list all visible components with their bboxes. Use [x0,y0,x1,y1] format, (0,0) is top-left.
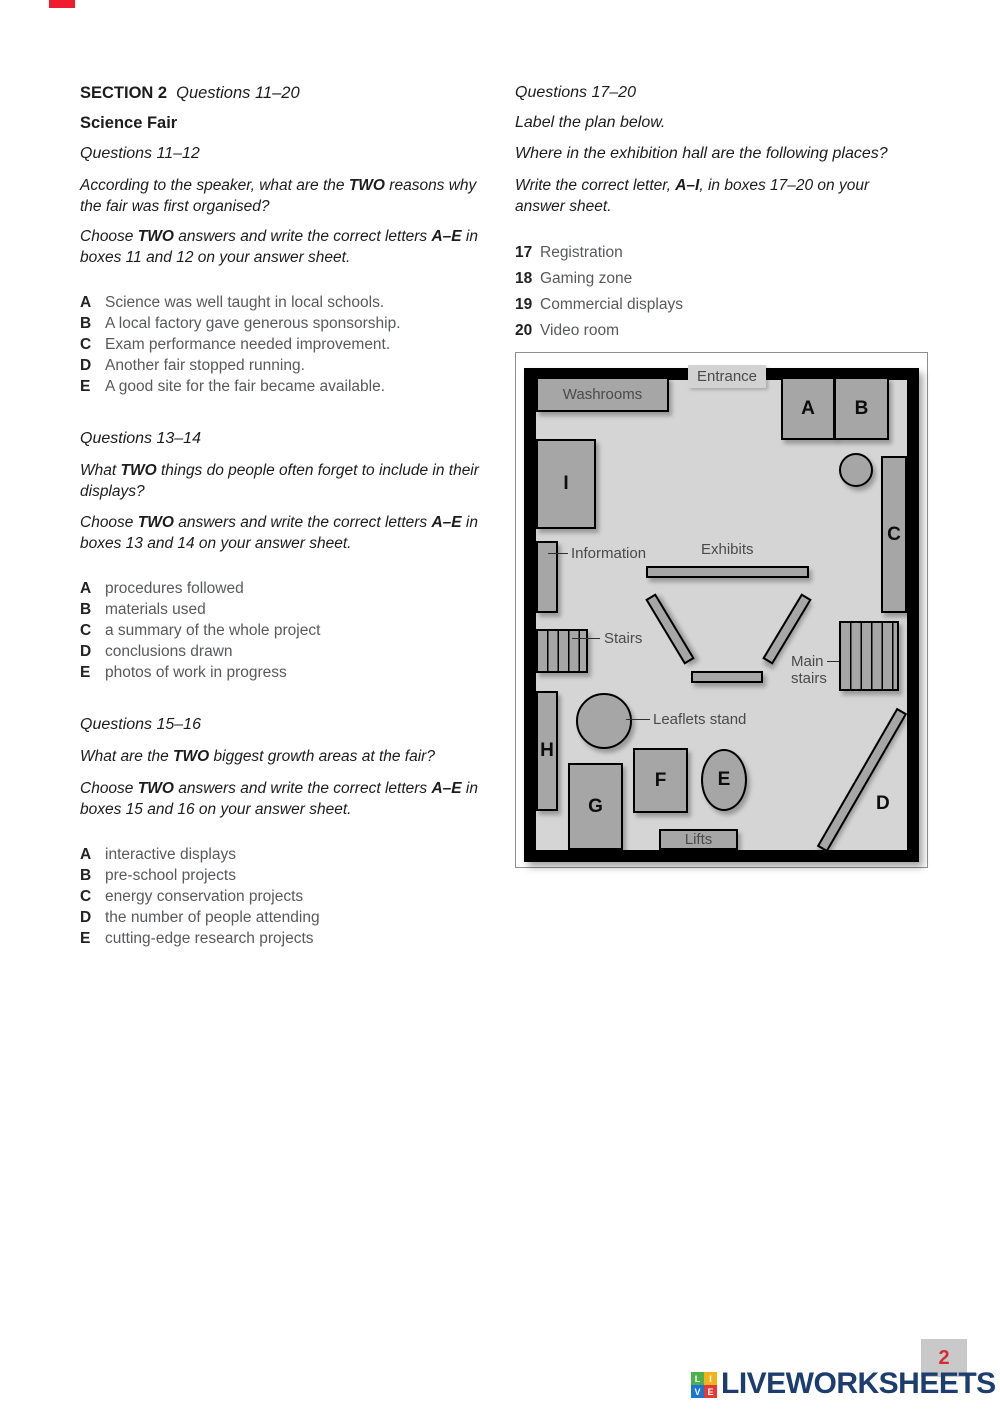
option-row: Bmaterials used [80,599,320,620]
question-label: Registration [540,240,623,266]
option-text: Another fair stopped running. [105,355,305,376]
plan-pillar-circle [839,453,873,487]
q11-12-options: AScience was well taught in local school… [80,292,401,397]
option-row: Ecutting-edge research projects [80,928,320,949]
plan-label-exhibits: Exhibits [701,541,754,558]
connector-line [548,553,568,554]
question-number: 20 [515,318,540,344]
option-text: conclusions drawn [105,641,233,662]
option-row: Aprocedures followed [80,578,320,599]
option-row: Dthe number of people attending [80,907,320,928]
question-bold: TWO [173,748,209,765]
plan-label-entrance: Entrance [688,365,766,388]
logo-square-l: L [691,1372,704,1385]
question-text: What [80,462,120,479]
instruction-bold: A–E [431,780,461,797]
q13-14-heading: Questions 13–14 [80,430,201,448]
option-letter: C [80,620,105,641]
plan-room-g: G [568,763,623,850]
question-item: 18Gaming zone [515,266,683,292]
option-text: materials used [105,599,206,620]
question-item: 19Commercial displays [515,292,683,318]
option-row: AScience was well taught in local school… [80,292,401,313]
q17-20-items: 17Registration 18Gaming zone 19Commercia… [515,240,683,344]
plan-label-main-stairs: Main stairs [791,653,827,687]
question-number: 17 [515,240,540,266]
instruction-text: Choose [80,780,138,797]
room-letter: A [801,398,815,420]
question-text: According to the speaker, what are the [80,177,349,194]
question-bold: TWO [349,177,385,194]
plan-room-e: E [701,749,747,811]
test-title: Science Fair [80,114,177,133]
option-text: A good site for the fair became availabl… [105,376,385,397]
room-letter: G [588,796,603,818]
q15-16-instruction: Choose TWO answers and write the correct… [80,778,492,820]
option-row: Ca summary of the whole project [80,620,320,641]
option-text: energy conservation projects [105,886,303,907]
q11-12-instruction: Choose TWO answers and write the correct… [80,226,492,268]
plan-label-stairs: Stairs [604,630,642,647]
question-label: Video room [540,318,619,344]
option-letter: D [80,641,105,662]
question-item: 20Video room [515,318,683,344]
instruction-text: answers and write the correct letters [174,514,432,531]
option-row: CExam performance needed improvement. [80,334,401,355]
plan-stairs-box [536,629,588,673]
option-row: Ephotos of work in progress [80,662,320,683]
q17-20-instruction: Write the correct letter, A–I, in boxes … [515,175,900,217]
q15-16-heading: Questions 15–16 [80,716,201,734]
plan-room-d-letter: D [876,793,890,815]
room-letter: B [855,398,869,420]
q13-14-options: Aprocedures followed Bmaterials used Ca … [80,578,320,683]
section-label: SECTION 2 [80,84,167,102]
room-letter: F [655,770,667,792]
question-label: Gaming zone [540,266,632,292]
option-text: the number of people attending [105,907,320,928]
q15-16-question: What are the TWO biggest growth areas at… [80,746,492,767]
q15-16-options: Ainteractive displays Bpre-school projec… [80,844,320,949]
instruction-bold: TWO [138,514,174,531]
q13-14-question: What TWO things do people often forget t… [80,460,492,502]
room-letter: I [563,473,568,495]
instruction-text: Choose [80,514,138,531]
connector-line [827,661,839,662]
main-stairs-line2: stairs [791,670,827,687]
plan-label-information: Information [571,545,646,562]
option-row: Dconclusions drawn [80,641,320,662]
logo-square-i: I [704,1372,717,1385]
option-letter: D [80,355,105,376]
connector-line [572,638,600,639]
plan-centre-stand [691,671,763,683]
option-row: DAnother fair stopped running. [80,355,401,376]
plan-main-stairs-box [839,621,899,691]
main-stairs-line1: Main [791,653,827,670]
q13-14-instruction: Choose TWO answers and write the correct… [80,512,492,554]
instruction-bold: TWO [138,228,174,245]
liveworksheets-grid-icon: L I V E [691,1372,717,1398]
logo-square-e: E [704,1385,717,1398]
option-text: Science was well taught in local schools… [105,292,384,313]
option-letter: A [80,844,105,865]
corner-red-mark [49,0,75,8]
option-letter: A [80,292,105,313]
option-letter: B [80,599,105,620]
option-text: photos of work in progress [105,662,287,683]
label-plan-line: Label the plan below. [515,114,665,132]
q11-12-heading: Questions 11–12 [80,145,200,163]
option-row: Bpre-school projects [80,865,320,886]
plan-room-i: I [536,439,596,529]
section-range: Questions 11–20 [176,84,300,102]
plan-exhibits-bar [646,566,809,578]
plan-washrooms-box: Washrooms [536,377,669,412]
question-text: biggest growth areas at the fair? [209,748,435,765]
q17-20-heading: Questions 17–20 [515,84,636,102]
option-row: EA good site for the fair became availab… [80,376,401,397]
option-text: pre-school projects [105,865,236,886]
option-letter: C [80,334,105,355]
option-letter: E [80,928,105,949]
option-letter: A [80,578,105,599]
option-letter: C [80,886,105,907]
option-row: Ainteractive displays [80,844,320,865]
room-letter: H [540,740,554,762]
plan-room-c: C [881,456,907,613]
plan-leaflets-circle [576,693,632,749]
room-letter: C [887,524,901,546]
logo-square-v: V [691,1385,704,1398]
option-text: interactive displays [105,844,236,865]
instruction-text: Write the correct letter, [515,177,675,194]
connector-line [626,719,650,720]
plan-label-leaflets: Leaflets stand [653,711,746,728]
plan-lifts-box: Lifts [659,829,738,850]
option-row: BA local factory gave generous sponsorsh… [80,313,401,334]
question-text: What are the [80,748,173,765]
instruction-bold: A–E [431,228,461,245]
question-label: Commercial displays [540,292,683,318]
instruction-text: answers and write the correct letters [174,228,432,245]
where-line: Where in the exhibition hall are the fol… [515,145,888,163]
plan-room-h: H [536,691,558,811]
plan-label-washrooms: Washrooms [563,386,642,403]
option-text: A local factory gave generous sponsorshi… [105,313,401,334]
option-letter: E [80,662,105,683]
question-bold: TWO [120,462,156,479]
instruction-text: answers and write the correct letters [174,780,432,797]
option-text: cutting-edge research projects [105,928,314,949]
liveworksheets-wordmark: LIVEWORKSHEETS [721,1369,996,1399]
plan-information-desk [536,541,558,613]
option-letter: E [80,376,105,397]
instruction-text: Choose [80,228,138,245]
instruction-bold: A–E [431,514,461,531]
option-text: Exam performance needed improvement. [105,334,390,355]
exhibition-hall-plan: Entrance Washrooms A B C I Information E… [515,352,928,868]
option-letter: D [80,907,105,928]
option-row: Cenergy conservation projects [80,886,320,907]
option-letter: B [80,865,105,886]
section-heading: SECTION 2Questions 11–20 [80,84,300,103]
instruction-bold: TWO [138,780,174,797]
option-text: a summary of the whole project [105,620,320,641]
question-number: 19 [515,292,540,318]
plan-room-b: B [834,377,889,440]
q11-12-question: According to the speaker, what are the T… [80,175,492,217]
room-letter: E [718,769,731,791]
instruction-bold: A–I [675,177,699,194]
plan-room-a: A [781,377,835,440]
plan-room-f: F [633,748,688,813]
question-number: 18 [515,266,540,292]
option-text: procedures followed [105,578,244,599]
plan-label-lifts: Lifts [685,831,713,848]
liveworksheets-logo: L I V E LIVEWORKSHEETS [691,1369,996,1399]
question-item: 17Registration [515,240,683,266]
option-letter: B [80,313,105,334]
